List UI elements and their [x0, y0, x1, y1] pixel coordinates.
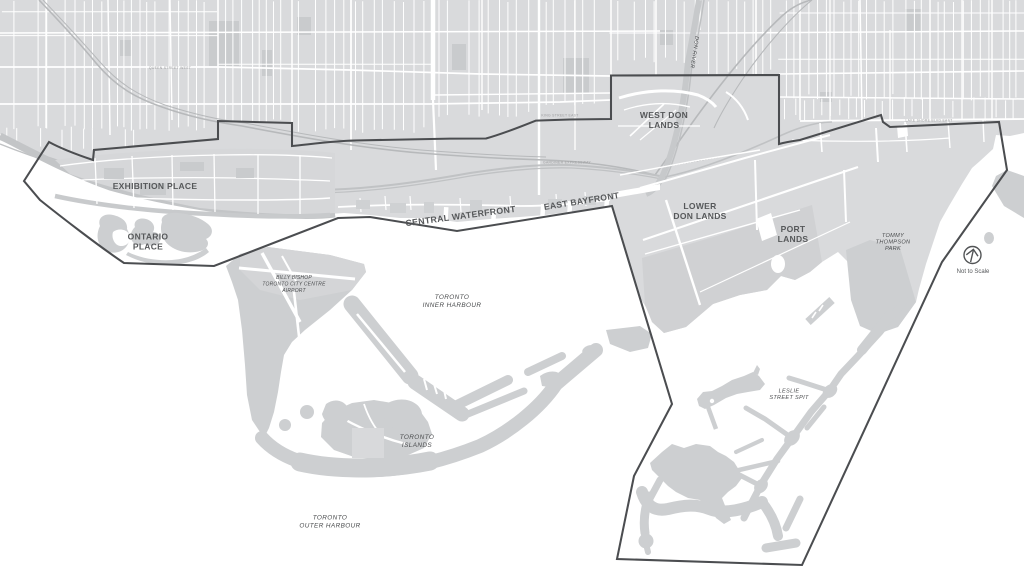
svg-text:ONTARIO: ONTARIO	[128, 232, 169, 242]
svg-text:PARK: PARK	[885, 246, 901, 252]
svg-text:KING STREET EAST: KING STREET EAST	[541, 114, 578, 118]
svg-text:PLACE: PLACE	[133, 242, 163, 252]
svg-text:STREET SPIT: STREET SPIT	[769, 395, 809, 401]
svg-text:LESLIE: LESLIE	[779, 389, 800, 395]
svg-text:QUEEN STREET WEST: QUEEN STREET WEST	[149, 66, 191, 70]
svg-text:BILLY BISHOP: BILLY BISHOP	[276, 275, 312, 281]
svg-text:ISLANDS: ISLANDS	[402, 442, 432, 449]
svg-text:DON LANDS: DON LANDS	[673, 211, 726, 221]
svg-text:EXHIBITION PLACE: EXHIBITION PLACE	[113, 181, 198, 191]
svg-text:LANDS: LANDS	[649, 120, 680, 130]
svg-text:TORONTO CITY CENTRE: TORONTO CITY CENTRE	[262, 282, 326, 288]
svg-text:LOWER: LOWER	[683, 201, 716, 211]
svg-text:PORT: PORT	[781, 224, 806, 234]
svg-text:TORONTO: TORONTO	[435, 294, 470, 301]
svg-text:TOMMY: TOMMY	[882, 233, 905, 239]
svg-text:TORONTO: TORONTO	[313, 515, 348, 522]
svg-text:LANDS: LANDS	[778, 234, 809, 244]
svg-text:TORONTO: TORONTO	[400, 434, 435, 441]
svg-text:AIRPORT: AIRPORT	[281, 288, 306, 294]
svg-text:WEST DON: WEST DON	[640, 110, 688, 120]
svg-text:INNER HARBOUR: INNER HARBOUR	[423, 302, 482, 309]
svg-text:GARDINER EXPRESSWAY: GARDINER EXPRESSWAY	[543, 161, 591, 165]
svg-text:Not to Scale: Not to Scale	[957, 269, 990, 275]
svg-text:THOMPSON: THOMPSON	[876, 240, 911, 246]
svg-text:LAKE SHORE BLVD EAST: LAKE SHORE BLVD EAST	[905, 119, 952, 123]
svg-text:OUTER HARBOUR: OUTER HARBOUR	[299, 523, 360, 530]
